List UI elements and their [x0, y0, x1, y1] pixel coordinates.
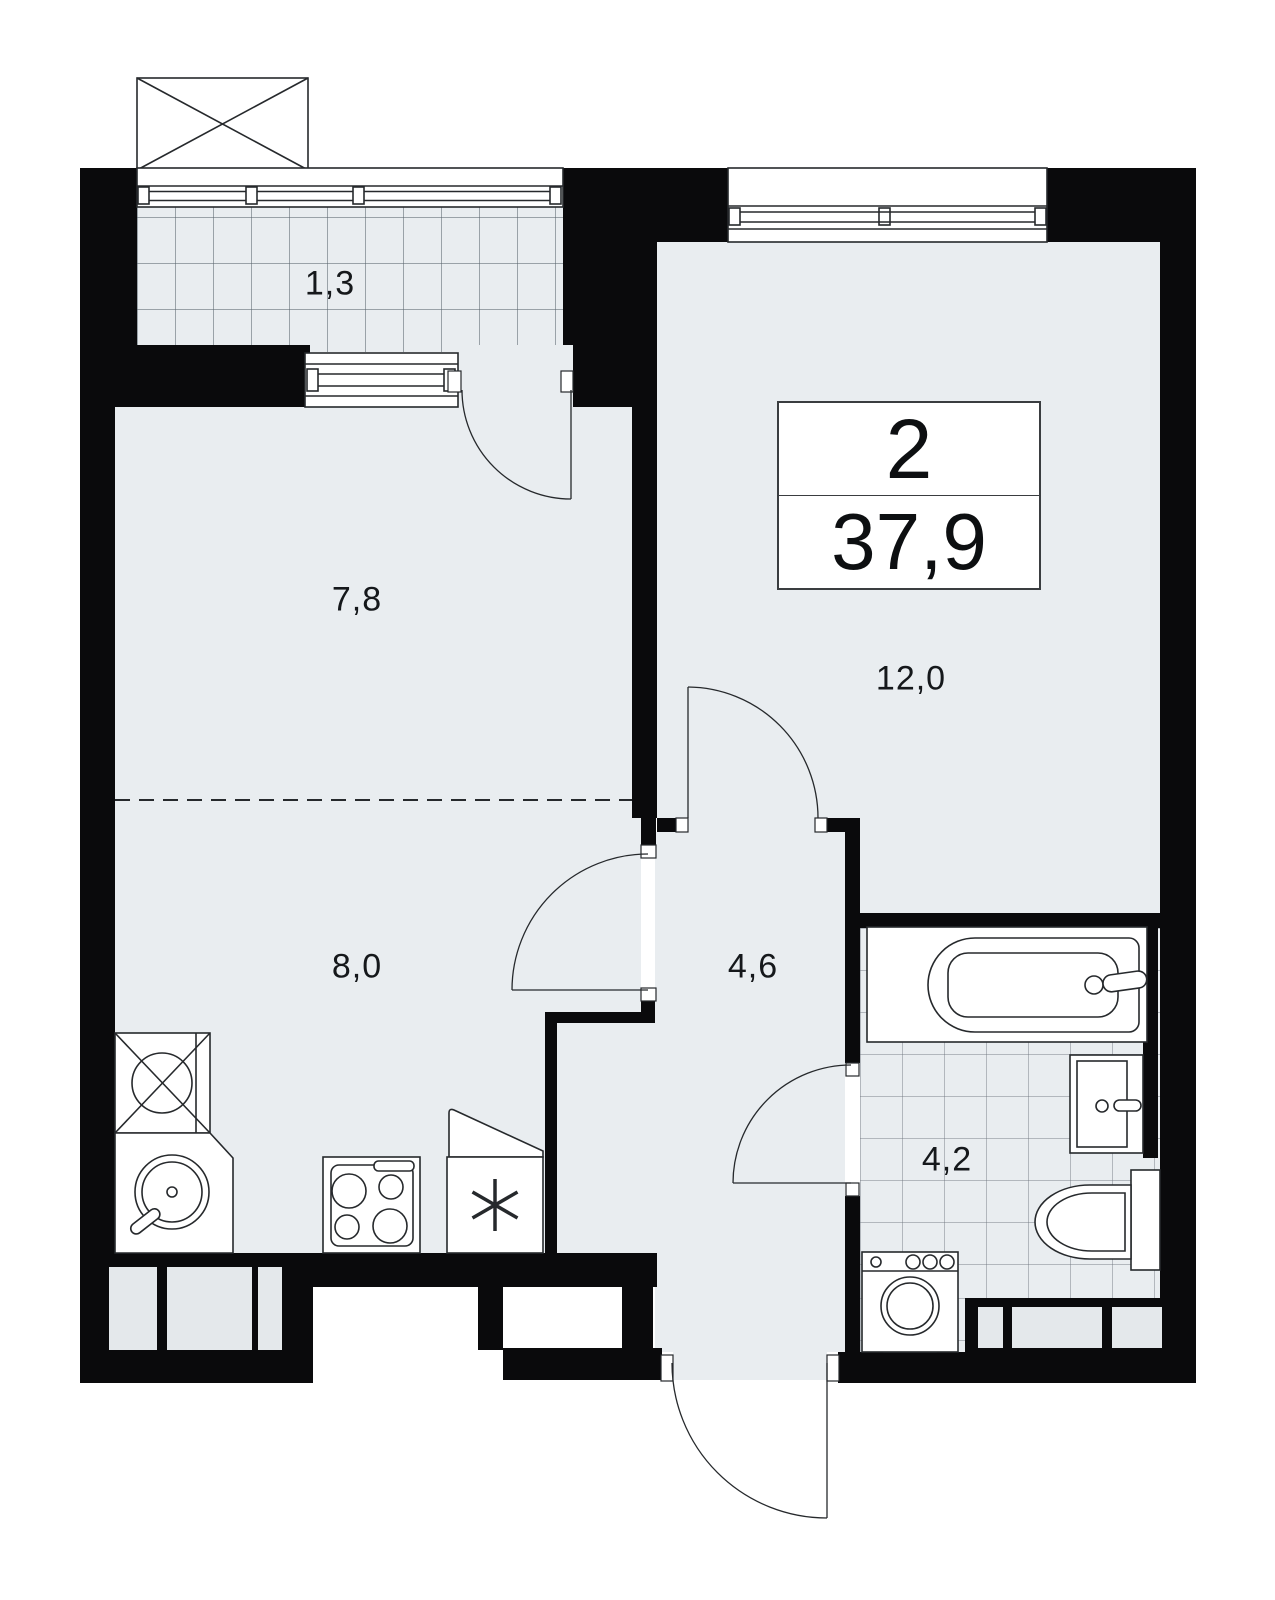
room-area-label-balcony: 1,3 — [305, 265, 355, 304]
washing-machine-icon — [862, 1252, 958, 1352]
entrance-door — [661, 1355, 839, 1518]
bedroom-window — [728, 168, 1047, 242]
vent-box-icon — [137, 78, 308, 170]
bathroom-door — [733, 1063, 859, 1196]
kitchen-window — [305, 353, 458, 407]
apartment-info-box: 2 37,9 — [777, 401, 1041, 590]
room-area-label-bedroom: 12,0 — [876, 660, 946, 699]
bedroom-door — [676, 687, 827, 832]
room-area-label-living: 7,8 — [332, 581, 382, 620]
plan-linework — [0, 0, 1275, 1600]
total-area: 37,9 — [779, 496, 1039, 588]
fridge-icon — [447, 1109, 543, 1253]
hotplate-icon — [115, 1033, 210, 1133]
kitchen-sink-icon — [115, 1133, 233, 1253]
rooms-count: 2 — [779, 403, 1039, 496]
toilet-icon — [1035, 1170, 1160, 1270]
floor-plan: 1,3 7,8 8,0 12,0 4,6 4,2 2 37,9 — [0, 0, 1275, 1600]
kitchen-door — [512, 845, 656, 1001]
balcony-door — [448, 371, 573, 499]
balcony-railing — [137, 168, 563, 207]
room-area-label-hallway: 4,6 — [728, 948, 778, 987]
bathtub-icon — [867, 927, 1148, 1042]
sink-icon — [1070, 1055, 1143, 1153]
room-area-label-kitchen: 8,0 — [332, 948, 382, 987]
room-area-label-bathroom: 4,2 — [922, 1141, 972, 1180]
stove-icon — [323, 1157, 420, 1253]
